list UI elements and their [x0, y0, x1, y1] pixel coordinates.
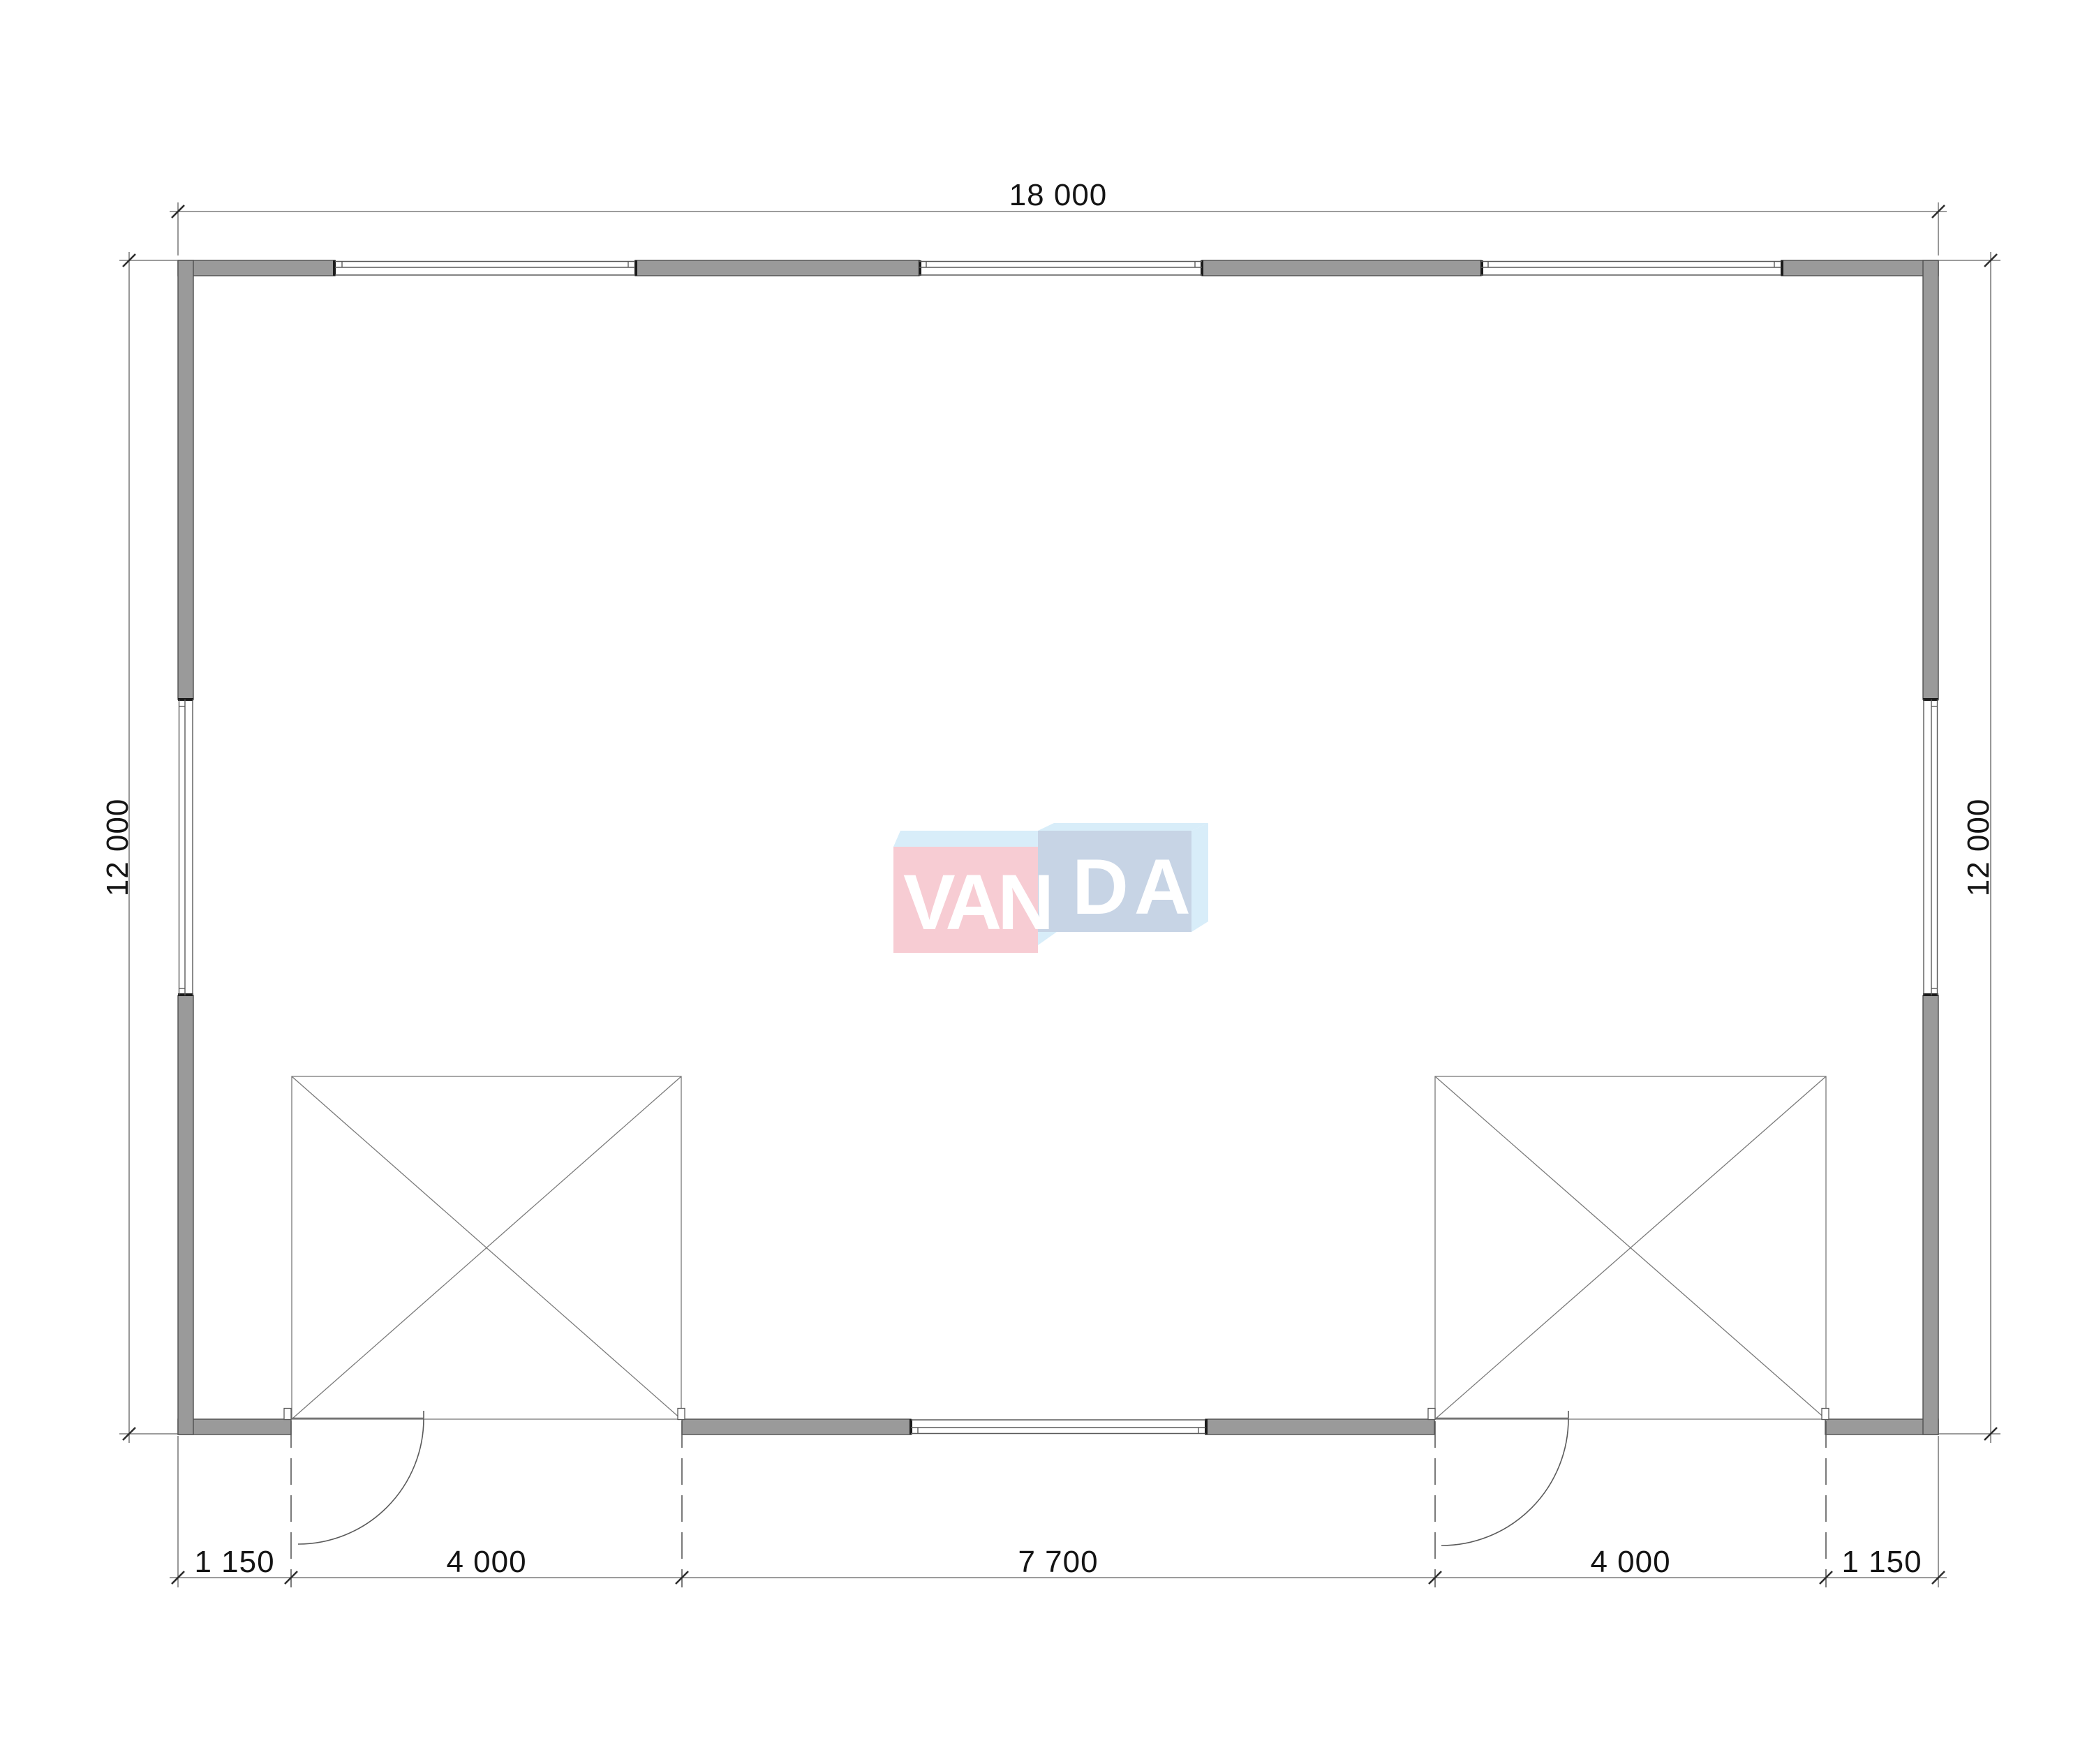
dim-label-bottom-5: 1 150 [1841, 1545, 1922, 1579]
wall-right-segment [1923, 260, 1938, 699]
door-swing-left [292, 1411, 424, 1544]
window-left [179, 699, 193, 995]
floorplan-canvas: 18 000 12 000 12 000 1 150 4 000 [0, 0, 2094, 1764]
wall-bottom-segment [1825, 1419, 1938, 1435]
dim-label-bottom-3: 7 700 [1018, 1545, 1098, 1579]
logo-text-van: VAN [903, 859, 1050, 946]
watermark-logo: VAN DA [893, 823, 1208, 953]
dim-label-bottom-4: 4 000 [1590, 1545, 1670, 1579]
wall-bottom-segment [178, 1419, 291, 1435]
garage-marker-right [1435, 1076, 1826, 1419]
window-bottom [911, 1420, 1205, 1434]
dim-label-top: 18 000 [1009, 178, 1108, 212]
dimension-top: 18 000 [170, 178, 1947, 255]
wall-right-segment [1923, 995, 1938, 1435]
garage-marker-left [292, 1076, 681, 1419]
window-top-3 [1481, 262, 1781, 276]
logo-block-blue-top [1038, 823, 1208, 831]
dim-label-bottom-1: 1 150 [194, 1545, 274, 1579]
wall-left-segment [178, 260, 193, 699]
floorplan-drawing: 18 000 12 000 12 000 1 150 4 000 [0, 0, 2094, 1764]
dimension-bottom: 1 150 4 000 7 700 4 000 1 150 [170, 1436, 1947, 1587]
wall-top-segment [635, 260, 919, 276]
wall-bottom-segment [1205, 1419, 1434, 1435]
window-right [1924, 699, 1938, 995]
window-top-1 [335, 262, 635, 276]
wall-bottom-segment [682, 1419, 911, 1435]
wall-top-segment [178, 260, 335, 276]
logo-text-da: DA [1072, 843, 1196, 931]
dim-label-bottom-2: 4 000 [446, 1545, 526, 1579]
dim-label-right: 12 000 [1961, 799, 1996, 897]
wall-top-segment [1781, 260, 1938, 276]
dim-label-left: 12 000 [101, 799, 135, 897]
logo-block-pink-top [893, 831, 1041, 847]
wall-left-segment [178, 995, 193, 1435]
wall-top-segment [1202, 260, 1481, 276]
dimension-left: 12 000 [101, 252, 178, 1443]
door-swing-right [1436, 1411, 1568, 1546]
window-top-2 [919, 262, 1202, 276]
door-jambs [284, 1409, 1829, 1420]
dimension-right: 12 000 [1938, 252, 2000, 1443]
